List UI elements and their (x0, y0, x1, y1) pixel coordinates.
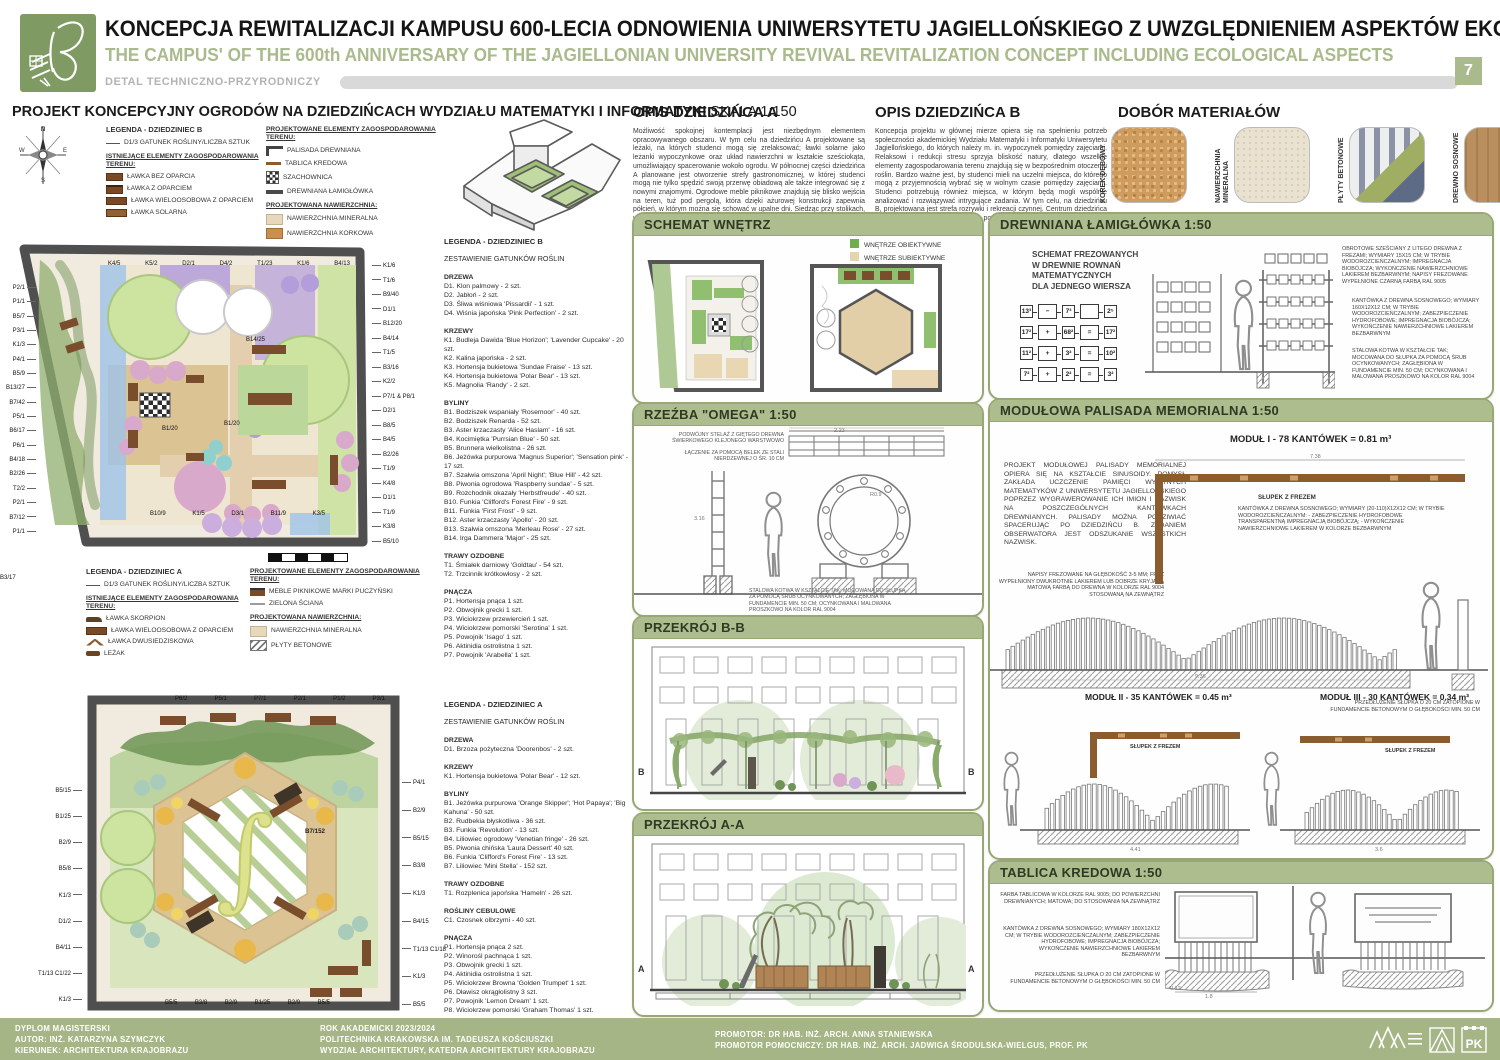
svg-text:W: W (19, 148, 25, 154)
plant-label: P2/1 (13, 500, 36, 506)
tablica-drawing (1165, 884, 1485, 1007)
plant-label: B5/5 (165, 1000, 177, 1006)
species-group-name: BYLINY (444, 399, 630, 408)
species-item: B6. Funkia 'Clifford's Forest Fire' - 13… (444, 853, 630, 862)
species-item: D3. Śliwa wiśniowa 'Pissardii' - 1 szt. (444, 300, 630, 309)
plant-label: T1/9 (372, 510, 415, 516)
legend-item: PALISADA DREWNIANA (266, 146, 441, 156)
plant-label: T1/6 (372, 278, 415, 284)
legend-a-proposed-title: PROJEKTOWANE ELEMENTY ZAGOSPODAROWANIA T… (250, 568, 435, 584)
plan-b-labels-bottom: B10/9K1/5D3/1B11/9K3/5 (150, 511, 325, 517)
material-label: KOREK DĘBOWY (1100, 129, 1108, 203)
footer-col-author: DYPLOM MAGISTERSKIAUTOR: INŻ. KATARZYNA … (15, 1023, 189, 1056)
equation-cell: 17² (1020, 326, 1033, 339)
plant-label: B5/10 (372, 539, 415, 545)
compass-rose-icon: N S E W (18, 122, 68, 193)
legend-item: LEŻAK (86, 650, 241, 658)
legend-symbol-icon (250, 603, 265, 605)
plant-label: D1/2 (58, 919, 82, 925)
legend-color-label: WNĘTRZE OBIEKTYWNE (864, 242, 941, 249)
footer-bar: DYPLOM MAGISTERSKIAUTOR: INŻ. KATARZYNA … (0, 1018, 1500, 1060)
species-item: P7. Powojnik 'Arabella' 1 szt. (444, 651, 630, 660)
species-group: DRZEWA D1. Klon palmowy - 2 szt.D2. Jabł… (444, 273, 630, 318)
equation-cell (1080, 304, 1099, 319)
footer-logos: PK (1368, 1024, 1488, 1060)
legend-item-label: ŁAWKA WIELOOSOBOWA Z OPARCIEM (131, 197, 253, 205)
palisada-module2-slupek: SŁUPEK Z FREZEM (1130, 744, 1180, 750)
species-item: B1. Jeżówka purpurowa 'Orange Skipper'; … (444, 799, 630, 817)
footer-line: WYDZIAŁ ARCHITEKTURY, KATEDRA ARCHITEKTU… (320, 1045, 595, 1056)
pk-logo-icon: PK (1462, 1026, 1486, 1052)
legend-item-label: MEBLE PIKNIKOWE MARKI PUCZYŃSKI (269, 588, 393, 596)
species-item: C1. Czosnek olbrzymi - 40 szt. (444, 916, 630, 925)
panel-aa-header: PRZEKRÓJ A-A (634, 814, 982, 836)
legend-symbol-icon (106, 197, 127, 205)
opis-b-title: OPIS DZIEDZIŃCA B (875, 104, 1020, 121)
material-item: DREWNO SOSNOWE (1453, 127, 1500, 203)
plant-label: K4/8 (372, 481, 415, 487)
species-key-label: D1/3 GATUNEK ROŚLINY/LICZBA SZTUK (104, 581, 230, 589)
legend-symbol-icon (250, 640, 267, 651)
legend-item: ZIELONA ŚCIANA (250, 600, 435, 608)
species-item: B14. Irga Dammera 'Major' - 25 szt. (444, 534, 630, 543)
equation-cell: = (1080, 325, 1099, 340)
plant-label: P7/1 & P8/1 (372, 394, 415, 400)
legend-a-title: LEGENDA - DZIEDZINIEC A (86, 568, 241, 576)
species-a-title: LEGENDA - DZIEDZINIEC A (444, 700, 630, 709)
plant-label: B4/5 (372, 437, 415, 443)
poster-title-pl: KONCEPCJA REWITALIZACJI KAMPUSU 600-LECI… (105, 16, 1500, 42)
species-list-b: LEGENDA - DZIEDZINIEC B ZESTAWIENIE GATU… (444, 237, 630, 669)
species-item: P7. Powojnik 'Lemon Dream' 1 szt. (444, 997, 630, 1006)
plant-label: B2/9 (402, 808, 446, 814)
legend-b-surface-title: PROJEKTOWANA NAWIERZCHNIA: (266, 202, 441, 210)
equation-cell: + (1038, 367, 1057, 382)
species-item: B5. Brunnera wielkolistna - 26 szt. (444, 444, 630, 453)
legend-item-label: ŁAWKA BEZ OPARCIA (127, 173, 195, 181)
plant-label: K1/3 (13, 342, 36, 348)
tablica-annotation-1: FARBA TABLICOWA W KOLORZE RAL 9005; DO P… (1000, 892, 1160, 905)
plant-label: B12/20 (372, 321, 415, 327)
plant-label: B2/9 (59, 840, 82, 846)
species-key-label: D1/3 GATUNEK ROŚLINY/LICZBA SZTUK (124, 139, 250, 147)
panel-przekroj-bb: PRZEKRÓJ B-B B B (632, 615, 984, 811)
material-item: KOREK DĘBOWY (1100, 127, 1187, 203)
species-group: TRAWY OZDOBNE T1. Śmiałek darniowy 'Gold… (444, 552, 630, 579)
legend-item: ŁAWKA SOLARNA (106, 209, 266, 217)
plant-label: P5/1 (215, 696, 227, 702)
plant-label: B6/17 (9, 428, 36, 434)
plant-label: D2/1 (182, 261, 195, 267)
plan-a-labels-top: P6/2P5/1P7/1P2/1P1/2P3/1 (175, 696, 385, 702)
plan-a-labels-left: B5/15B1/25B2/9B5/8K1/3D1/2B4/11T1/13 C1/… (24, 788, 82, 1003)
legend-b-title: LEGENDA - DZIEDZINIEC B (106, 126, 266, 134)
legend-symbol-icon (250, 626, 267, 637)
svg-text:N: N (41, 127, 45, 133)
plant-label: K1/6 (297, 261, 309, 267)
plant-label: P1/1 (13, 529, 36, 535)
legend-symbol-icon (266, 162, 281, 165)
plan-b-labels-left: P2/1P1/1B5/7P3/1K1/3P4/1B5/9B13/27B7/42P… (0, 285, 36, 535)
equation-cell: 13³ (1020, 305, 1033, 318)
butterfly-logo-icon (20, 14, 96, 92)
plant-label: D1/1 (372, 307, 415, 313)
studio-logo (20, 14, 96, 92)
equation-cell: 10² (1104, 347, 1117, 360)
footer-line: DYPLOM MAGISTERSKI (15, 1023, 189, 1034)
section-marker-b-left: B (638, 767, 645, 777)
materials-row: KOREK DĘBOWY NAWIERZCHNIA MINERALNA PŁYT… (1100, 127, 1500, 203)
legend-item: ŁAWKA WIELOOSOBOWA Z OPARCIEM (106, 197, 266, 205)
tablica-annotation-2: KANTÓWKA Z DREWNA SOSNOWEGO; WYMIARY 180… (1000, 926, 1160, 959)
species-item: P4. Aktinidia ostrolistna 1 szt. (444, 970, 630, 979)
plant-label: K4/5 (108, 261, 120, 267)
species-item: D4. Wiśnia japońska 'Pink Perfection' - … (444, 309, 630, 318)
plan-a-labels-right: P4/1B2/9B5/15B3/8K1/3B4/15T1/13 C1/18K1/… (402, 780, 446, 1008)
species-group-name: ROŚLINY CEBULOWE (444, 907, 630, 916)
plant-label: P3/1 (373, 696, 385, 702)
species-item: P4. Wiciokrzew pomorski 'Serotina' 1 szt… (444, 624, 630, 633)
svg-text:S: S (41, 178, 45, 184)
landscape-dept-logo-icon (1370, 1028, 1405, 1048)
equation-cell: = (1080, 346, 1099, 361)
plant-label: K1/3 (402, 891, 446, 897)
species-item: K1. Hortensja bukietowa 'Polar Bear' - 1… (444, 772, 630, 781)
plant-label: K5/2 (145, 261, 157, 267)
species-item: B8. Piwonia ogrodowa 'Raspberry sundae' … (444, 480, 630, 489)
plant-label: P5/1 (13, 414, 36, 420)
species-item: D2. Jabłoń - 2 szt. (444, 291, 630, 300)
species-item: B4. Liliowiec ogrodowy 'Venetian fringe'… (444, 835, 630, 844)
plant-label: P6/2 (175, 696, 187, 702)
plant-label: B5/15 (55, 788, 82, 794)
species-group: TRAWY OZDOBNE T1. Rozplenica japońska 'H… (444, 880, 630, 898)
plant-label: K3/5 (313, 511, 325, 517)
footer-line: PROMOTOR POMOCNICZY: DR HAB. INŻ. ARCH. … (715, 1040, 1088, 1051)
plant-label: B2/9 (225, 1000, 237, 1006)
plant-label: D4/2 (220, 261, 233, 267)
palisada-module3-title: MODUŁ III - 30 KANTÓWEK = 0.34 m³ (1320, 692, 1469, 702)
species-item: T1. Rozplenica japońska 'Hameln' - 26 sz… (444, 889, 630, 898)
species-group: PNĄCZA P1. Hortensja pnąca 2 szt.P2. Win… (444, 934, 630, 1015)
equation-row: 13³−7³2⁵ (1020, 304, 1122, 319)
plant-label: B5/5 (318, 1000, 330, 1006)
equation-cell: + (1038, 325, 1057, 340)
palisada-dim2: 4.41 (1130, 847, 1141, 853)
architecture-faculty-logo-icon (1430, 1028, 1454, 1052)
legend-a-col2: PROJEKTOWANE ELEMENTY ZAGOSPODAROWANIA T… (250, 568, 435, 655)
species-item: T1. Śmiałek darniowy 'Goldtau' - 54 szt. (444, 561, 630, 570)
species-item: P3. Obwojnik grecki 1 szt. (444, 961, 630, 970)
section-marker-a-right: A (968, 964, 975, 974)
species-item: B3. Aster krzaczasty 'Alice Haslam' - 16… (444, 426, 630, 435)
species-item: B4. Kocimiętka 'Purrsian Blue' - 50 szt. (444, 435, 630, 444)
legend-a-existing-list: ŁAWKA SKORPIONŁAWKA WIELOOSOBOWA Z OPARC… (86, 615, 241, 658)
plant-label: K1/3 (59, 997, 82, 1003)
plant-label: T2/2 (13, 486, 36, 492)
plant-label: T1/13 C1/18 (402, 947, 446, 953)
plant-label: B3/8 (195, 1000, 207, 1006)
legend-symbol-icon (250, 588, 265, 596)
page-number-badge: 7 (1455, 57, 1482, 85)
equation-cell: 7² (1020, 368, 1033, 381)
plant-label: T1/9 (372, 466, 415, 472)
lamiglowka-annotation-3: STALOWA KOTWA W KSZTAŁCIE TAK; MOCOWANA … (1352, 348, 1482, 381)
plant-label: B5/15 (402, 836, 446, 842)
species-group: ROŚLINY CEBULOWE C1. Czosnek olbrzymi - … (444, 907, 630, 925)
species-item: D1. Brzoza pożyteczna 'Doorenbos' - 2 sz… (444, 745, 630, 754)
equation-cell: 2² (1062, 368, 1075, 381)
materials-title: DOBÓR MATERIAŁÓW (1118, 104, 1280, 121)
species-group: BYLINY B1. Jeżówka purpurowa 'Orange Ski… (444, 790, 630, 871)
footer-line: PROMOTOR: DR HAB. INŻ. ARCH. ANNA STANIE… (715, 1029, 1088, 1040)
legend-symbol-icon (106, 209, 127, 217)
legend-item: NAWIERZCHNIA MINERALNA (250, 626, 435, 637)
panel-tablica: TABLICA KREDOWA 1:50 FARBA TABLICOWA W K… (988, 860, 1494, 1012)
section-marker-a-left: A (638, 964, 645, 974)
footer-col-promoters: PROMOTOR: DR HAB. INŻ. ARCH. ANNA STANIE… (715, 1029, 1088, 1051)
species-item: B7. Liliowiec 'Mini Stella' - 152 szt. (444, 862, 630, 871)
species-group-name: TRAWY OZDOBNE (444, 880, 630, 889)
plant-label: B4/13 (334, 261, 350, 267)
plant-label: B3/8 (402, 863, 446, 869)
plant-label: B1/25 (55, 814, 82, 820)
species-group-name: PNĄCZA (444, 934, 630, 943)
footer-line: POLITECHNIKA KRAKOWSKA IM. TADEUSZA KOŚC… (320, 1034, 595, 1045)
plant-label: D2/1 (372, 408, 415, 414)
plant-label: B14/25 (246, 337, 265, 343)
plan-a-courtyard: ∫ (10, 688, 452, 1018)
species-group-name: TRAWY OZDOBNE (444, 552, 630, 561)
legend-a-proposed-list: MEBLE PIKNIKOWE MARKI PUCZYŃSKIZIELONA Ś… (250, 588, 435, 608)
legend-item: NAWIERZCHNIA MINERALNA (266, 214, 441, 225)
panel-schemat-wnetrz: SCHEMAT WNĘTRZ WNĘTRZE OBIEKTYWNEWNĘTRZE… (632, 212, 984, 404)
species-item: B10. Funkia 'Clifford's Forest Fire' - 9… (444, 498, 630, 507)
legend-a-surface-title: PROJEKTOWANA NAWIERZCHNIA: (250, 614, 435, 622)
plant-label: B2/26 (372, 452, 415, 458)
legend-item-label: ŁAWKA SKORPION (106, 615, 165, 623)
plant-label: B13/27 (6, 385, 36, 391)
legend-a-col1: LEGENDA - DZIEDZINIEC A D1/3 GATUNEK ROŚ… (86, 568, 241, 661)
footer-line: KIERUNEK: ARCHITEKTURA KRAJOBRAZU (15, 1045, 189, 1056)
legend-item: ŁAWKA Z OPARCIEM (106, 185, 266, 194)
plant-label: B1/20 (224, 421, 240, 427)
legend-item-label: LEŻAK (104, 650, 125, 658)
legend-symbol-icon (266, 171, 279, 184)
plant-label: K1/5 (192, 511, 204, 517)
equation-row: 11²+3²=10² (1020, 346, 1122, 361)
omega-drawing (634, 426, 982, 612)
species-item: T2. Trzcinnik krótkowłosy - 2 szt. (444, 570, 630, 579)
species-group: KRZEWY K1. Budleja Dawida 'Blue Horizon'… (444, 327, 630, 390)
species-group-name: DRZEWA (444, 273, 630, 282)
material-swatch (1349, 127, 1425, 203)
species-group: PNĄCZA P1. Hortensja pnąca 1 szt.P2. Obw… (444, 588, 630, 660)
plant-label: B4/14 (372, 336, 415, 342)
panel-tablica-header: TABLICA KREDOWA 1:50 (990, 862, 1492, 884)
material-label: PŁYTY BETONOWE (1338, 129, 1346, 203)
plant-label: K1/6 (372, 263, 415, 269)
plant-label: B4/18 (9, 457, 36, 463)
lamiglowka-annotation-2: KANTÓWKA Z DREWNA SOSNOWEGO; WYMIARY 160… (1352, 298, 1482, 338)
equation-cell: − (1038, 304, 1057, 319)
legend-item: ŁAWKA DWUSIEDZISKOWA (86, 638, 241, 646)
palisada-drawing (990, 422, 1488, 855)
species-group-name: DRZEWA (444, 736, 630, 745)
legend-item-label: PALISADA DREWNIANA (287, 147, 361, 155)
plant-label: B5/8 (59, 866, 82, 872)
plant-label: T1/23 (257, 261, 272, 267)
legend-item: TABLICA KREDOWA (266, 160, 441, 168)
footer-line: ROK AKADEMICKI 2023/2024 (320, 1023, 595, 1034)
section-marker-b-right: B (968, 767, 975, 777)
schemat-legend-item: WNĘTRZE OBIEKTYWNE (850, 239, 945, 252)
species-item: B5. Piwonia chińska 'Laura Dessert' 40 s… (444, 844, 630, 853)
plan-b-scalebar (268, 553, 348, 562)
species-item: P6. Dławisz okrągłolistny 3 szt. (444, 988, 630, 997)
species-item: K1. Budleja Dawida 'Blue Horizon'; 'Lave… (444, 336, 630, 354)
tablica-dim-w: 1.8 (1205, 994, 1213, 1000)
equation-cell: = (1080, 367, 1099, 382)
plan-b-courtyard: P2/1P1/1B5/7P3/1K1/3P4/1B5/9B13/27B7/42P… (0, 225, 442, 570)
species-item: P3. Wiciokrzew przewiercień 1 szt. (444, 615, 630, 624)
legend-item-label: ŁAWKA SOLARNA (131, 209, 187, 217)
lamiglowka-schema-text: SCHEMAT FREZOWANYCH W DREWNIE ROWNAŃ MAT… (1032, 250, 1138, 292)
legend-a-surface-list: NAWIERZCHNIA MINERALNAPŁYTY BETONOWE (250, 626, 435, 652)
svg-text:∫: ∫ (216, 794, 273, 922)
plant-label: B9/40 (372, 292, 415, 298)
plant-label: B3/17 (0, 575, 16, 581)
plant-label: P2/1 (13, 285, 36, 291)
lamiglowka-equations: 13³−7³2⁵ 17²+68²=17² 11²+3²=10² 7²+2²=3² (1020, 298, 1122, 388)
legend-item-label: ŁAWKA WIELOOSOBOWA Z OPARCIEM (111, 627, 233, 635)
legend-symbol-icon (86, 617, 102, 622)
species-a-subtitle: ZESTAWIENIE GATUNKÓW ROŚLIN (444, 717, 630, 726)
species-group-name: PNĄCZA (444, 588, 630, 597)
plan-a-labels-bottom: B5/5B3/8B2/9B1/25B2/9B5/5 (165, 1000, 330, 1006)
svg-text:E: E (63, 148, 67, 154)
legend-b-proposed-list: PALISADA DREWNIANATABLICA KREDOWASZACHOW… (266, 146, 441, 196)
poster-title-en: THE CAMPUS' OF THE 600th ANNIVERSARY OF … (105, 44, 1491, 66)
species-item: B2. Rudbekia błyskotliwa - 36 szt. (444, 817, 630, 826)
legend-symbol-icon (86, 651, 100, 656)
panel-bb-header: PRZEKRÓJ B-B (634, 617, 982, 639)
legend-item-label: NAWIERZCHNIA MINERALNA (287, 215, 378, 223)
species-item: P5. Powojnik 'Isago' 1 szt. (444, 633, 630, 642)
legend-item-label: SZACHOWNICA (283, 174, 332, 182)
equation-cell: 3² (1104, 368, 1117, 381)
legend-b-col1: LEGENDA - DZIEDZINIEC B D1/3 GATUNEK ROŚ… (106, 126, 266, 220)
header-divider-pill (340, 76, 1458, 89)
species-b-title: LEGENDA - DZIEDZINIEC B (444, 237, 630, 246)
species-item: K4. Hortensja bukietowa 'Polar Bear' - 1… (444, 372, 630, 381)
legend-symbol-icon (106, 173, 123, 181)
plant-label: P4/1 (402, 780, 446, 786)
legend-item-label: TABLICA KREDOWA (285, 160, 347, 168)
plan-b-labels-top: K4/5K5/2D2/1D4/2T1/23K1/6B4/13 (108, 261, 350, 267)
tablica-annotation-3: PRZEDŁUŻENIE SŁUPKA O 20 CM ZATOPIONE W … (1000, 972, 1160, 985)
legend-symbol-icon (266, 146, 283, 156)
species-item: B1. Bodziszek wspaniały 'Rosemoor' - 40 … (444, 408, 630, 417)
panel-lamiglowka: DREWNIANA ŁAMIGŁÓWKA 1:50 SCHEMAT FREZOW… (988, 212, 1494, 400)
lamiglowka-drawing (1145, 244, 1335, 394)
palisada-module2-title: MODUŁ II - 35 KANTÓWEK = 0.45 m³ (1085, 692, 1232, 702)
plant-label: P7/1 (254, 696, 266, 702)
species-key-icon (86, 585, 100, 586)
material-swatch (1464, 127, 1500, 203)
legend-item: MEBLE PIKNIKOWE MARKI PUCZYŃSKI (250, 588, 435, 596)
footer-line: AUTOR: INŻ. KATARZYNA SZYMCZYK (15, 1034, 189, 1045)
legend-symbol-icon (106, 185, 123, 194)
palisada-module3-slupek: SŁUPEK Z FREZEM (1385, 748, 1435, 754)
legend-item: PŁYTY BETONOWE (250, 640, 435, 651)
legend-b-existing-list: ŁAWKA BEZ OPARCIAŁAWKA Z OPARCIEMŁAWKA W… (106, 173, 266, 217)
species-item: P1. Hortensja pnąca 2 szt. (444, 943, 630, 952)
species-item: B6. Jeżówka purpurowa 'Magnus Superior';… (444, 453, 630, 471)
material-swatch (1234, 127, 1310, 203)
species-item: K5. Magnolia 'Randy' - 2 szt. (444, 381, 630, 390)
plant-label: T1/13 C1/22 (38, 971, 82, 977)
equation-cell: 68² (1062, 326, 1075, 339)
plant-label: P2/1 (294, 696, 306, 702)
legend-item-label: ZIELONA ŚCIANA (269, 600, 323, 608)
species-item: B13. Szałwia omszona 'Merleau Rose' - 27… (444, 525, 630, 534)
plant-label: K2/2 (372, 379, 415, 385)
species-group-name: BYLINY (444, 790, 630, 799)
equation-row: 7²+2²=3² (1020, 367, 1122, 382)
legend-symbol-icon (266, 214, 283, 225)
przekroj-bb-drawing (650, 645, 966, 800)
plant-label: B2/26 (9, 471, 36, 477)
plan-b-labels-right: K1/6T1/6B9/40D1/1B12/20B4/14T1/5B3/16K2/… (372, 263, 415, 545)
plant-label: B7/12 (9, 515, 36, 521)
plant-label: B8/5 (372, 423, 415, 429)
legend-item: ŁAWKA BEZ OPARCIA (106, 173, 266, 181)
species-group-name: KRZEWY (444, 327, 630, 336)
species-group: DRZEWA D1. Brzoza pożyteczna 'Doorenbos'… (444, 736, 630, 754)
plant-label: B1/20 (162, 426, 178, 432)
legend-symbol-icon (86, 639, 104, 646)
species-item: B3. Funkia 'Revolution' - 13 szt. (444, 826, 630, 835)
panel-rzezba-omega: RZEŹBA "OMEGA" 1:50 PODWÓJNY STELAŻ Z GI… (632, 402, 984, 617)
species-b-subtitle: ZESTAWIENIE GATUNKÓW ROŚLIN (444, 254, 630, 263)
species-item: K3. Hortensja bukietowa 'Sundae Fraise' … (444, 363, 630, 372)
legend-b-existing-title: ISTNIEJĄCE ELEMENTY ZAGOSPODAROWANIA TER… (106, 153, 266, 169)
material-label: DREWNO SOSNOWE (1453, 129, 1461, 203)
legend-item-label: DREWNIANA ŁAMIGŁÓWKA (287, 188, 373, 196)
plant-label: B4/15 (402, 919, 446, 925)
legend-color-swatch (850, 239, 859, 248)
plant-label: B7/42 (9, 400, 36, 406)
footer-col-university: ROK AKADEMICKI 2023/2024POLITECHNIKA KRA… (320, 1023, 595, 1056)
plant-label: D3/1 (231, 511, 244, 517)
plant-label: B3/16 (372, 365, 415, 371)
species-item: B11. Funkia 'First Frost' - 9 szt. (444, 507, 630, 516)
panel-omega-header: RZEŹBA "OMEGA" 1:50 (634, 404, 982, 426)
plant-label: P1/1 (13, 299, 36, 305)
plant-label: P3/1 (13, 328, 36, 334)
plant-label: P6/1 (13, 443, 36, 449)
legend-a-existing-title: ISTNIEJĄCE ELEMENTY ZAGOSPODAROWANIA TER… (86, 595, 241, 611)
species-item: K2. Kalina japońska - 2 szt. (444, 354, 630, 363)
legend-item-label: ŁAWKA Z OPARCIEM (127, 185, 192, 193)
legend-item-label: ŁAWKA DWUSIEDZISKOWA (108, 638, 194, 646)
species-group: BYLINY B1. Bodziszek wspaniały 'Rosemoor… (444, 399, 630, 543)
plant-label: P4/1 (13, 357, 36, 363)
palisada-dim3: 3.6 (1375, 847, 1383, 853)
panel-schemat-header: SCHEMAT WNĘTRZ (634, 214, 982, 236)
panel-przekroj-aa: PRZEKRÓJ A-A A A (632, 812, 984, 1017)
